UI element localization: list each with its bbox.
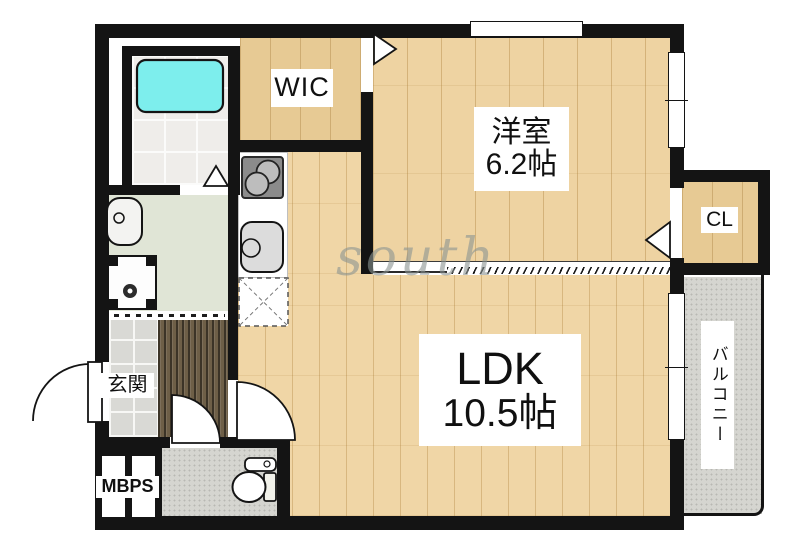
closet-door [646, 222, 670, 258]
ldk-door-swing [237, 382, 295, 440]
bathroom-door [204, 166, 228, 186]
floor-plan: WIC 洋室 6.2帖 CL LDK 10.5帖 バルコニー 玄関 MBPS s… [0, 0, 800, 545]
toilet-cistern [245, 458, 276, 471]
washer-corner [108, 299, 118, 309]
western-room-size: 6.2帖 [486, 149, 558, 181]
washbasin [107, 198, 142, 245]
meter-box-label: MBPS [96, 476, 159, 498]
fixtures-overlay [0, 0, 800, 545]
washer-corner [146, 256, 156, 266]
entrance-label: 玄関 [101, 373, 154, 398]
ldk-size: 10.5帖 [443, 393, 558, 435]
western-room-name: 洋室 [492, 117, 552, 149]
kitchen-sink [241, 222, 283, 272]
entrance-door-leaf [88, 362, 102, 422]
washer-corner [108, 256, 118, 266]
wic-door [374, 34, 396, 64]
closet-label: CL [701, 207, 738, 233]
ldk-name: LDK [456, 345, 544, 394]
wic-label: WIC [271, 69, 333, 107]
washer-corner [146, 299, 156, 309]
balcony-label: バルコニー [701, 321, 734, 469]
stove-burner [246, 173, 269, 196]
toilet-door-swing [172, 395, 220, 443]
toilet-bowl [233, 472, 266, 502]
entrance-door-swing [33, 364, 90, 421]
washer-drain-dot [128, 289, 133, 294]
bathtub [137, 60, 223, 112]
